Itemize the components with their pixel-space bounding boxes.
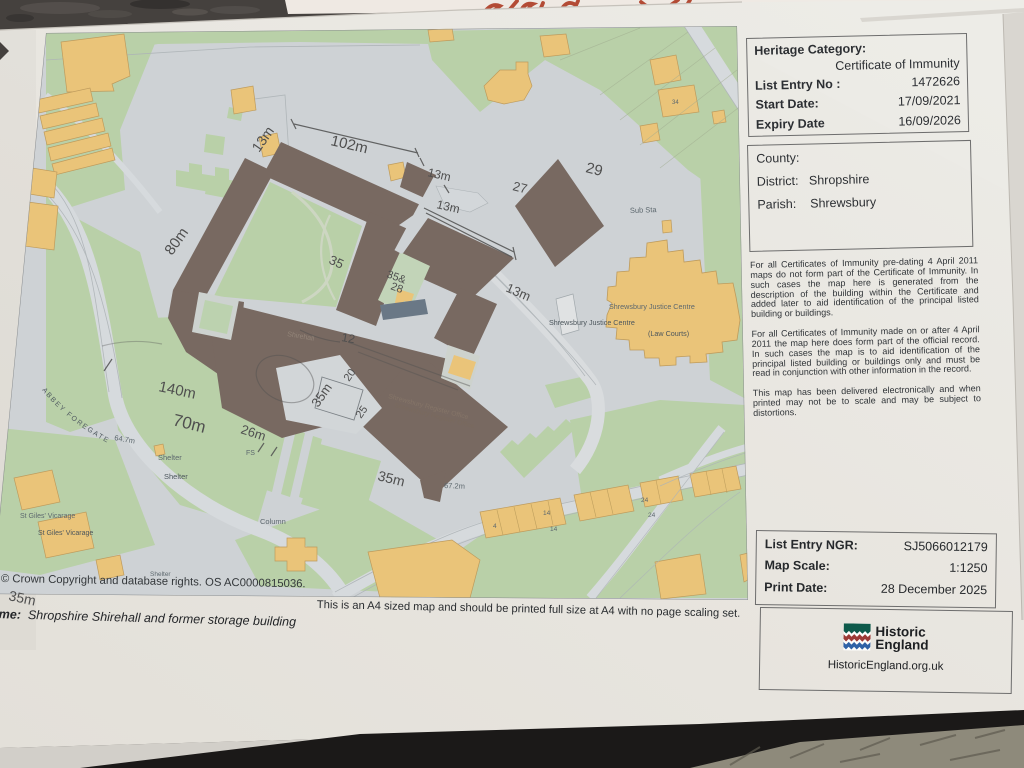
svg-text:Shirehall: Shirehall bbox=[287, 331, 315, 343]
svg-text:14: 14 bbox=[550, 526, 558, 533]
svg-text:35m: 35m bbox=[376, 467, 406, 489]
svg-text:Sub Sta: Sub Sta bbox=[630, 205, 658, 215]
svg-text:80m: 80m bbox=[161, 225, 192, 259]
svg-text:27: 27 bbox=[511, 178, 529, 196]
svg-text:ABBEY FOREGATE: ABBEY FOREGATE bbox=[40, 387, 110, 445]
svg-text:70m: 70m bbox=[171, 410, 208, 436]
svg-text:35m: 35m bbox=[7, 587, 37, 608]
svg-text:(Law Courts): (Law Courts) bbox=[648, 329, 689, 338]
svg-text:13m: 13m bbox=[248, 123, 277, 154]
svg-text:102m: 102m bbox=[329, 132, 369, 157]
svg-text:35m: 35m bbox=[308, 380, 335, 409]
svg-text:64.7m: 64.7m bbox=[114, 433, 136, 445]
svg-text:24: 24 bbox=[648, 512, 656, 519]
svg-text:Shrewsbury Justice Centre: Shrewsbury Justice Centre bbox=[549, 318, 635, 327]
svg-text:FS: FS bbox=[246, 450, 255, 457]
svg-text:34: 34 bbox=[672, 100, 679, 106]
svg-text:28: 28 bbox=[389, 281, 405, 296]
svg-text:13m: 13m bbox=[426, 165, 452, 184]
svg-text:20: 20 bbox=[342, 367, 359, 384]
svg-text:14: 14 bbox=[543, 510, 551, 517]
svg-text:13m: 13m bbox=[504, 280, 533, 304]
svg-text:Shrewsbury Justice Centre: Shrewsbury Justice Centre bbox=[609, 302, 695, 311]
svg-text:St Giles' Vicarage: St Giles' Vicarage bbox=[20, 513, 75, 520]
svg-text:140m: 140m bbox=[157, 378, 197, 402]
svg-text:Column: Column bbox=[260, 517, 286, 526]
svg-text:Shelter: Shelter bbox=[164, 472, 188, 481]
svg-text:St Giles' Vicarage: St Giles' Vicarage bbox=[38, 530, 93, 537]
svg-text:67.2m: 67.2m bbox=[444, 481, 465, 491]
svg-text:26m: 26m bbox=[239, 422, 268, 444]
svg-text:4: 4 bbox=[493, 523, 497, 530]
svg-text:24: 24 bbox=[641, 497, 649, 504]
svg-text:35: 35 bbox=[327, 252, 346, 272]
svg-text:13m: 13m bbox=[435, 197, 461, 216]
svg-text:29: 29 bbox=[584, 159, 604, 180]
svg-text:Shelter: Shelter bbox=[158, 453, 182, 462]
svg-text:25: 25 bbox=[354, 404, 371, 421]
